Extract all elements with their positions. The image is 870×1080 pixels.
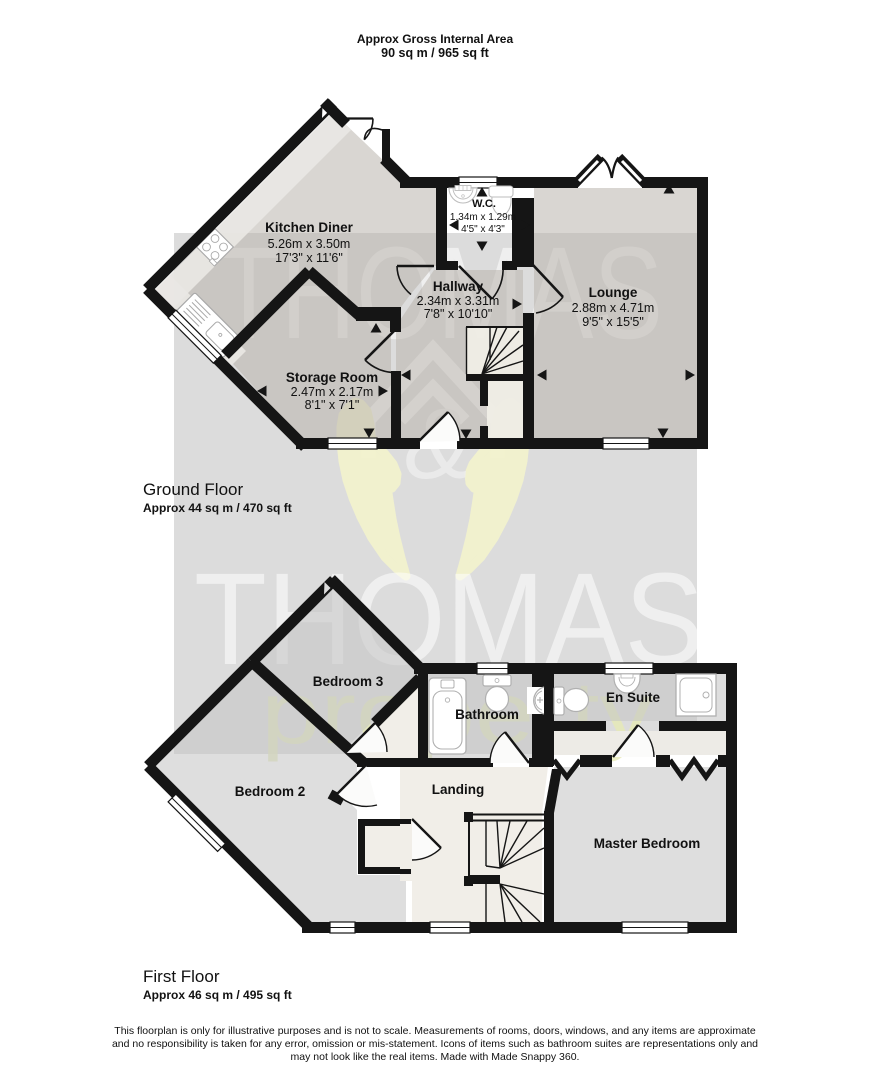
svg-text:Lounge: Lounge (589, 285, 638, 300)
svg-text:Bathroom: Bathroom (455, 707, 519, 722)
svg-text:Bedroom 3: Bedroom 3 (313, 674, 384, 689)
svg-text:2.88m x 4.71m: 2.88m x 4.71m (572, 301, 655, 315)
svg-text:2.34m x 3.31m: 2.34m x 3.31m (417, 294, 500, 308)
svg-text:9'5" x 15'5": 9'5" x 15'5" (582, 315, 644, 329)
svg-text:This floorplan is only for ill: This floorplan is only for illustrative … (114, 1025, 756, 1037)
svg-text:and no responsibility is taken: and no responsibility is taken for any e… (112, 1038, 758, 1050)
svg-text:Approx 46 sq m / 495 sq ft: Approx 46 sq m / 495 sq ft (143, 988, 292, 1002)
svg-text:Storage Room: Storage Room (286, 370, 378, 385)
svg-text:1.34m x 1.29m: 1.34m x 1.29m (450, 212, 516, 223)
svg-text:First Floor: First Floor (143, 967, 220, 986)
svg-text:Bedroom 2: Bedroom 2 (235, 784, 306, 799)
svg-text:7'8" x 10'10": 7'8" x 10'10" (424, 307, 493, 321)
svg-text:Hallway: Hallway (433, 279, 484, 294)
svg-text:W.C.: W.C. (472, 198, 496, 210)
svg-text:Ground Floor: Ground Floor (143, 480, 243, 499)
svg-text:Approx Gross Internal Area: Approx Gross Internal Area (357, 32, 514, 46)
svg-text:4'5" x 4'3": 4'5" x 4'3" (461, 224, 505, 235)
svg-text:may not look like the real ite: may not look like the real items. Made w… (291, 1051, 580, 1063)
svg-text:Approx 44 sq m / 470 sq ft: Approx 44 sq m / 470 sq ft (143, 501, 292, 515)
svg-text:90 sq m / 965 sq ft: 90 sq m / 965 sq ft (381, 46, 490, 60)
svg-text:Master Bedroom: Master Bedroom (594, 836, 701, 851)
svg-text:En Suite: En Suite (606, 690, 660, 705)
svg-text:2.47m x 2.17m: 2.47m x 2.17m (291, 385, 374, 399)
svg-text:17'3" x 11'6": 17'3" x 11'6" (275, 251, 343, 265)
svg-text:Landing: Landing (432, 782, 485, 797)
svg-text:5.26m x 3.50m: 5.26m x 3.50m (268, 237, 351, 251)
svg-text:Kitchen Diner: Kitchen Diner (265, 220, 354, 235)
svg-text:8'1" x 7'1": 8'1" x 7'1" (305, 398, 360, 412)
